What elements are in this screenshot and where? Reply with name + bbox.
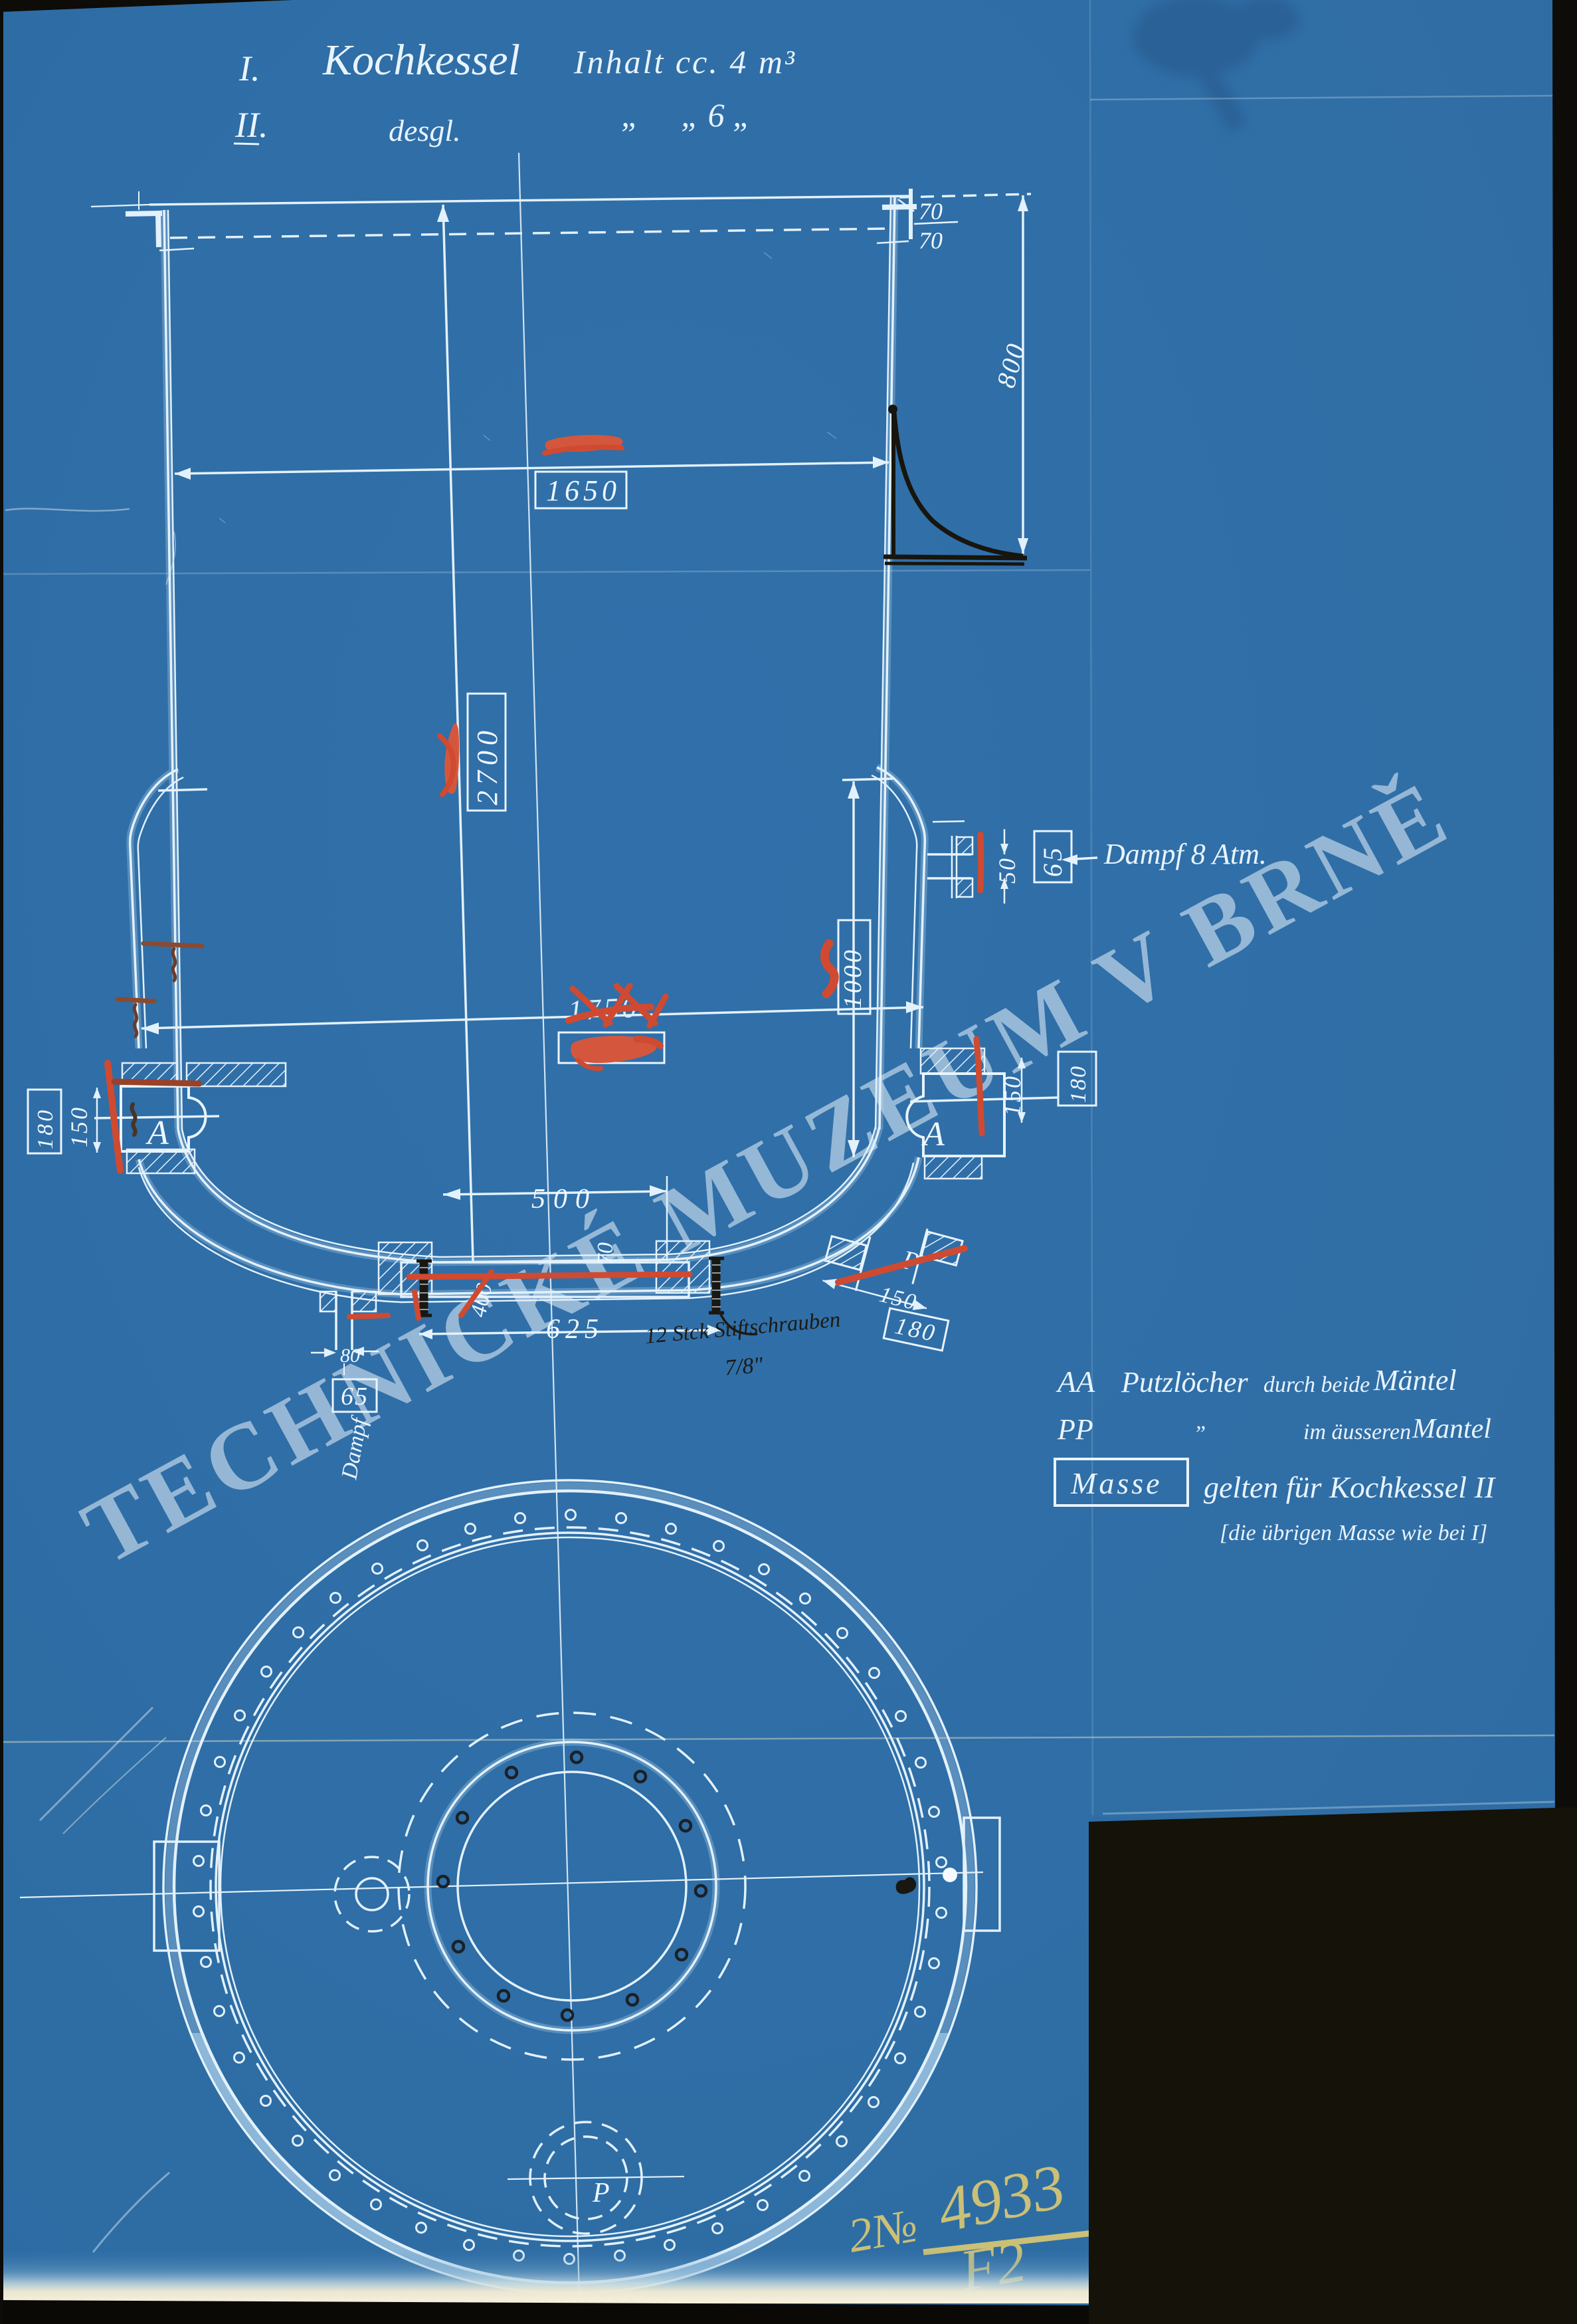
svg-text:150: 150 — [999, 1074, 1026, 1116]
svg-text:Masse: Masse — [1070, 1466, 1162, 1500]
svg-text:II.: II. — [234, 105, 268, 145]
svg-text:80: 80 — [340, 1345, 360, 1367]
svg-text:durch beide: durch beide — [1263, 1373, 1370, 1397]
svg-text:gelten für Kochkessel II: gelten für Kochkessel II — [1204, 1470, 1497, 1504]
svg-text:70: 70 — [593, 1242, 618, 1265]
svg-text:Inhalt cc. 4 m³: Inhalt cc. 4 m³ — [573, 43, 796, 80]
svg-text:180: 180 — [33, 1108, 58, 1149]
svg-text:„: „ — [1196, 1409, 1208, 1434]
svg-text:Mäntel: Mäntel — [1373, 1364, 1457, 1397]
svg-text:70: 70 — [919, 227, 943, 254]
svg-text:AA: AA — [1056, 1365, 1095, 1399]
svg-text:A: A — [145, 1114, 169, 1152]
svg-text:7/8": 7/8" — [723, 1353, 764, 1381]
svg-text:A: A — [921, 1115, 945, 1153]
svg-text:Putzlöcher: Putzlöcher — [1121, 1366, 1249, 1399]
svg-text:2700: 2700 — [471, 726, 504, 805]
svg-text:Kochkessel: Kochkessel — [322, 36, 520, 84]
svg-text:65: 65 — [341, 1383, 369, 1410]
svg-text:180: 180 — [1066, 1065, 1091, 1103]
svg-text:[die übrigen Masse wie bei I]: [die übrigen Masse wie bei I] — [1220, 1521, 1487, 1545]
svg-text:65: 65 — [1038, 845, 1067, 877]
svg-text:70: 70 — [919, 198, 943, 225]
svg-text:150: 150 — [66, 1106, 92, 1147]
svg-text:desgl.: desgl. — [389, 114, 461, 147]
svg-text:Mantel: Mantel — [1412, 1414, 1491, 1444]
svg-text:I.: I. — [238, 48, 260, 88]
svg-text:500: 500 — [531, 1184, 597, 1214]
svg-text:1000: 1000 — [839, 947, 867, 1009]
svg-text:im äusseren: im äusseren — [1303, 1420, 1411, 1444]
svg-text:50: 50 — [994, 857, 1020, 884]
svg-text:P: P — [592, 2178, 610, 2208]
svg-text:1650: 1650 — [546, 474, 620, 507]
svg-text:PP: PP — [1057, 1413, 1093, 1446]
svg-text:„ „ 6 „: „ „ 6 „ — [621, 96, 751, 134]
svg-text:Dampf 8 Atm.: Dampf 8 Atm. — [1103, 838, 1267, 870]
svg-text:625: 625 — [546, 1314, 604, 1345]
